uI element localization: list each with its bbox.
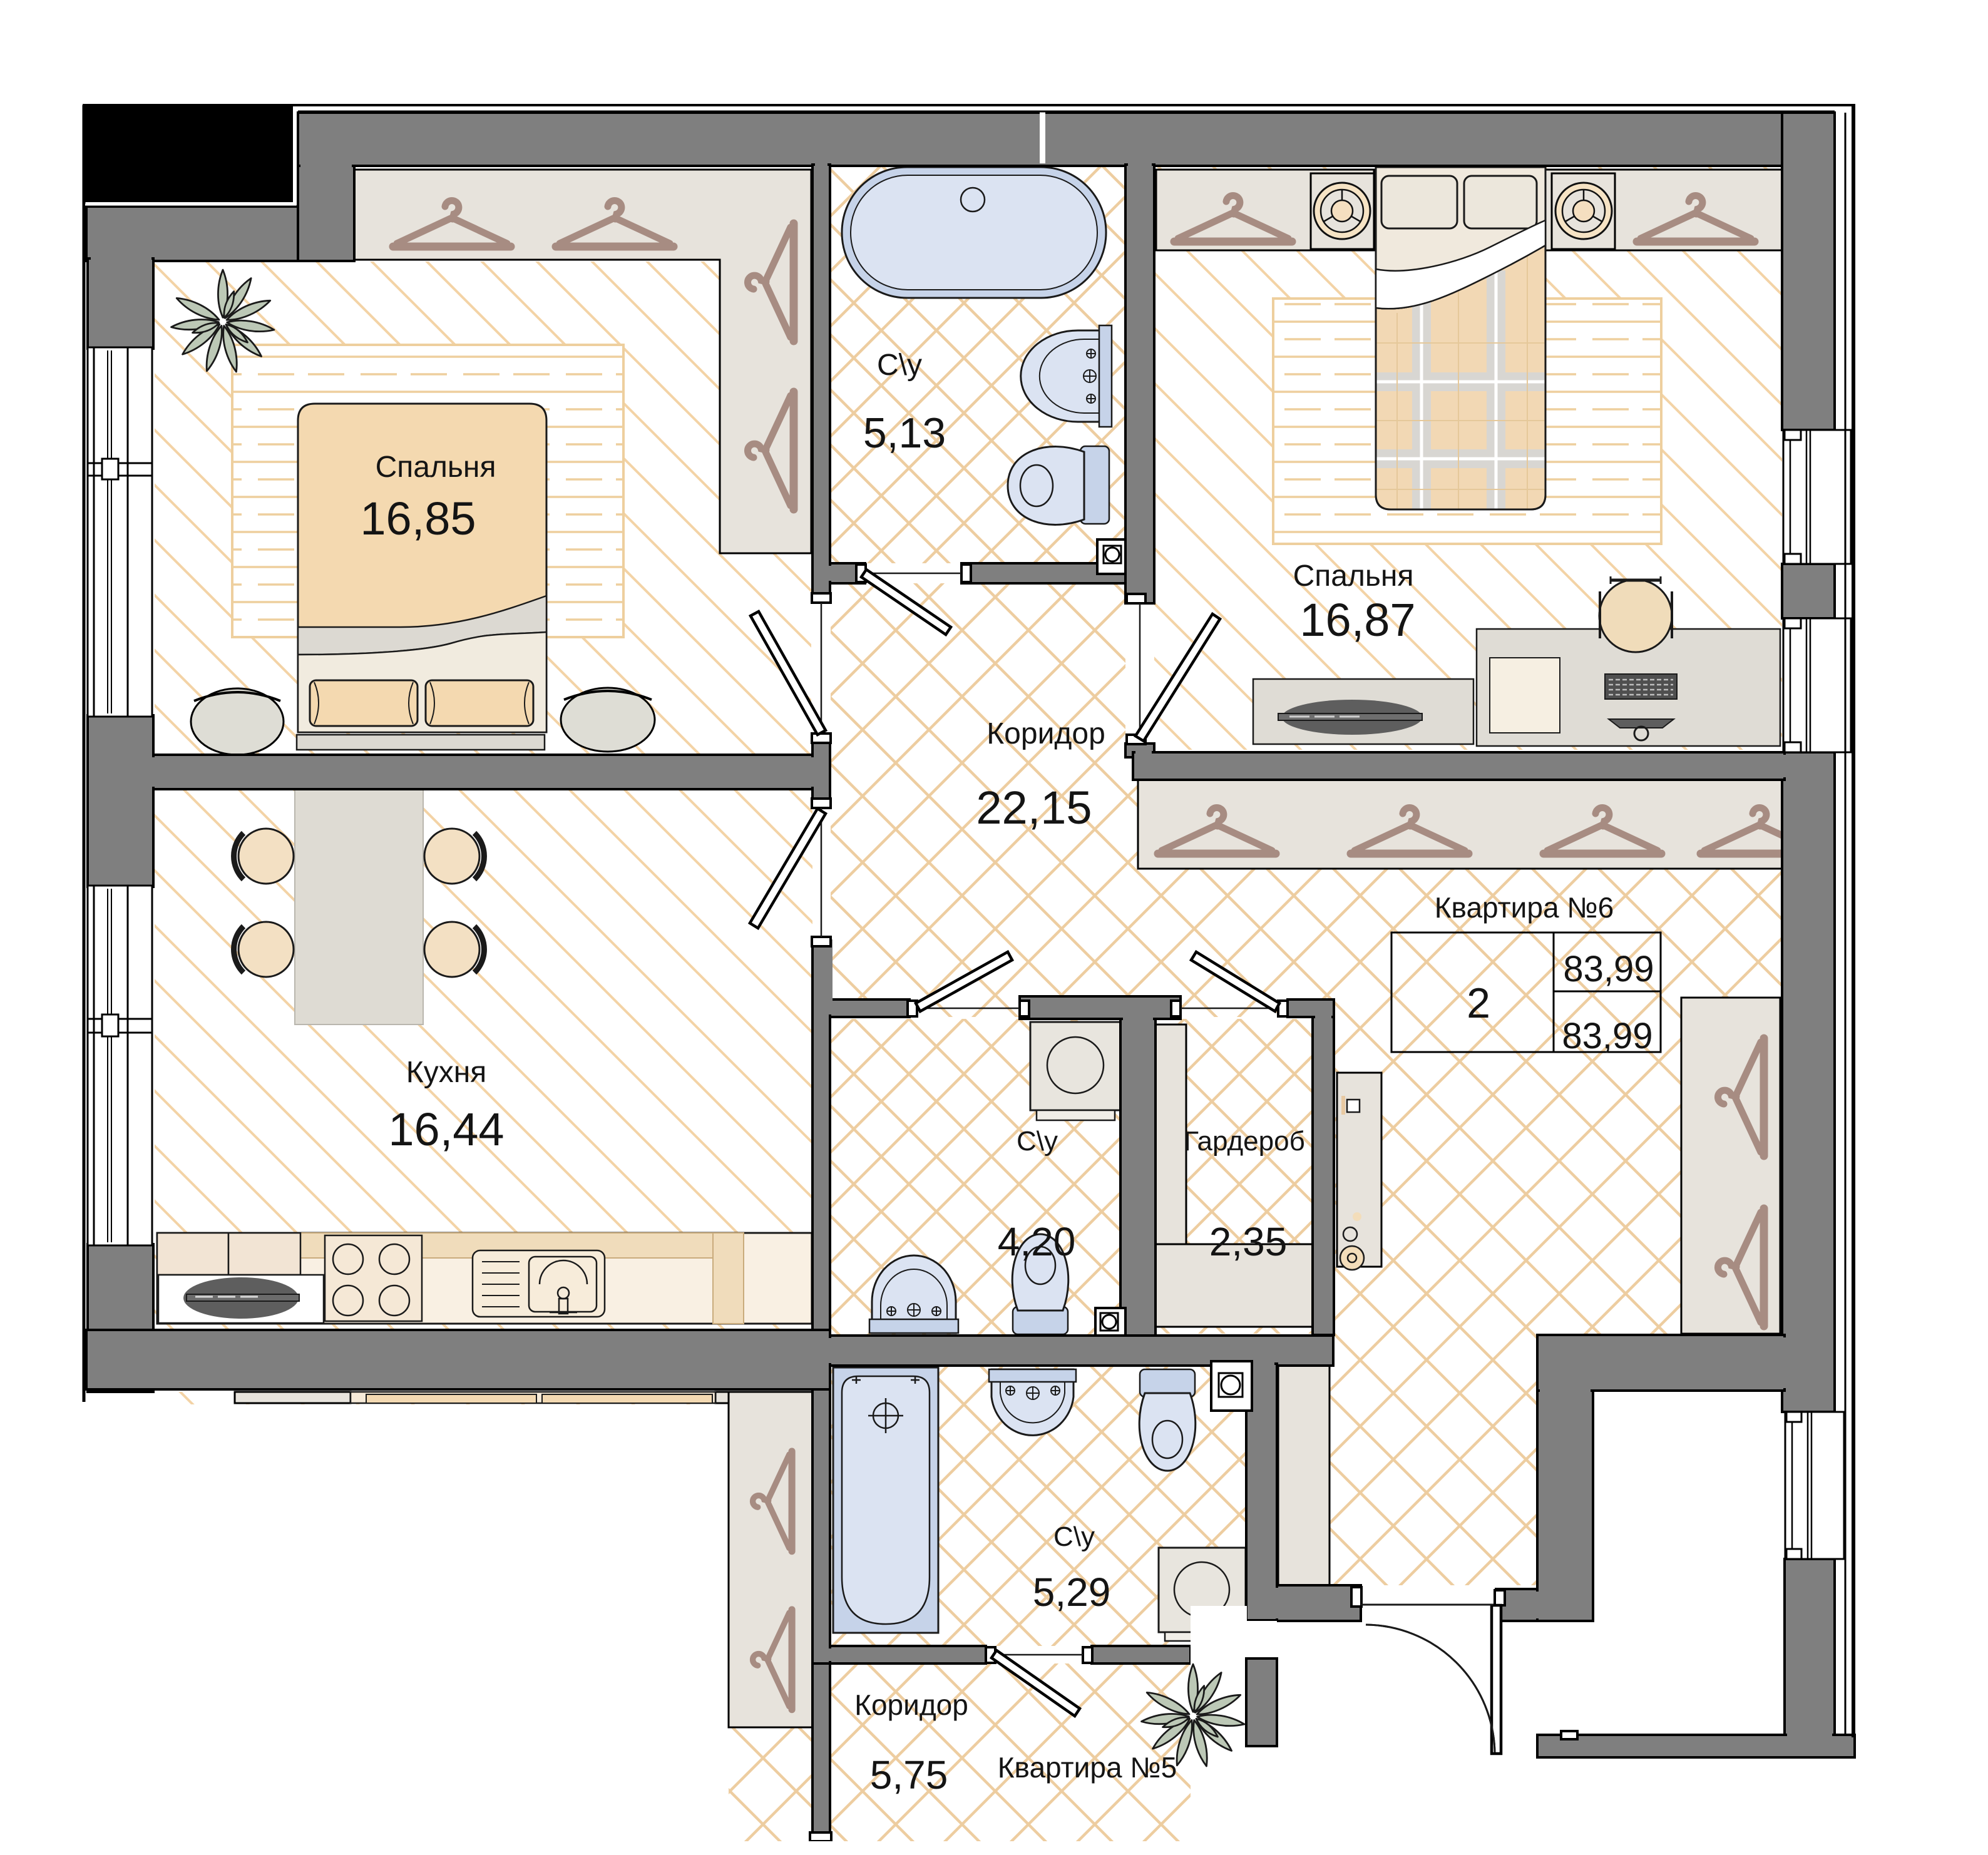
svg-text:16,87: 16,87 — [1299, 594, 1415, 646]
svg-text:16,85: 16,85 — [360, 493, 476, 544]
svg-text:Спальня: Спальня — [376, 451, 496, 484]
svg-text:5,13: 5,13 — [863, 409, 946, 457]
svg-text:Коридор: Коридор — [986, 717, 1105, 750]
svg-text:Кухня: Кухня — [406, 1056, 486, 1089]
svg-text:2,35: 2,35 — [1209, 1219, 1288, 1264]
svg-text:Гардероб: Гардероб — [1184, 1126, 1305, 1157]
svg-text:С\у: С\у — [877, 349, 922, 382]
svg-text:Коридор: Коридор — [854, 1689, 968, 1721]
svg-text:Квартира №5: Квартира №5 — [998, 1751, 1177, 1784]
svg-text:2: 2 — [1467, 979, 1490, 1027]
svg-text:83,99: 83,99 — [1563, 949, 1654, 989]
svg-text:5,75: 5,75 — [870, 1752, 948, 1797]
svg-text:22,15: 22,15 — [976, 782, 1092, 834]
svg-text:Спальня: Спальня — [1293, 560, 1414, 593]
svg-text:83,99: 83,99 — [1562, 1016, 1652, 1056]
svg-text:4,20: 4,20 — [998, 1219, 1076, 1264]
svg-text:5,29: 5,29 — [1033, 1570, 1111, 1615]
svg-text:16,44: 16,44 — [388, 1103, 504, 1155]
svg-text:С\у: С\у — [1017, 1126, 1058, 1157]
svg-text:Квартира №6: Квартира №6 — [1435, 891, 1614, 924]
svg-text:С\у: С\у — [1053, 1521, 1095, 1552]
